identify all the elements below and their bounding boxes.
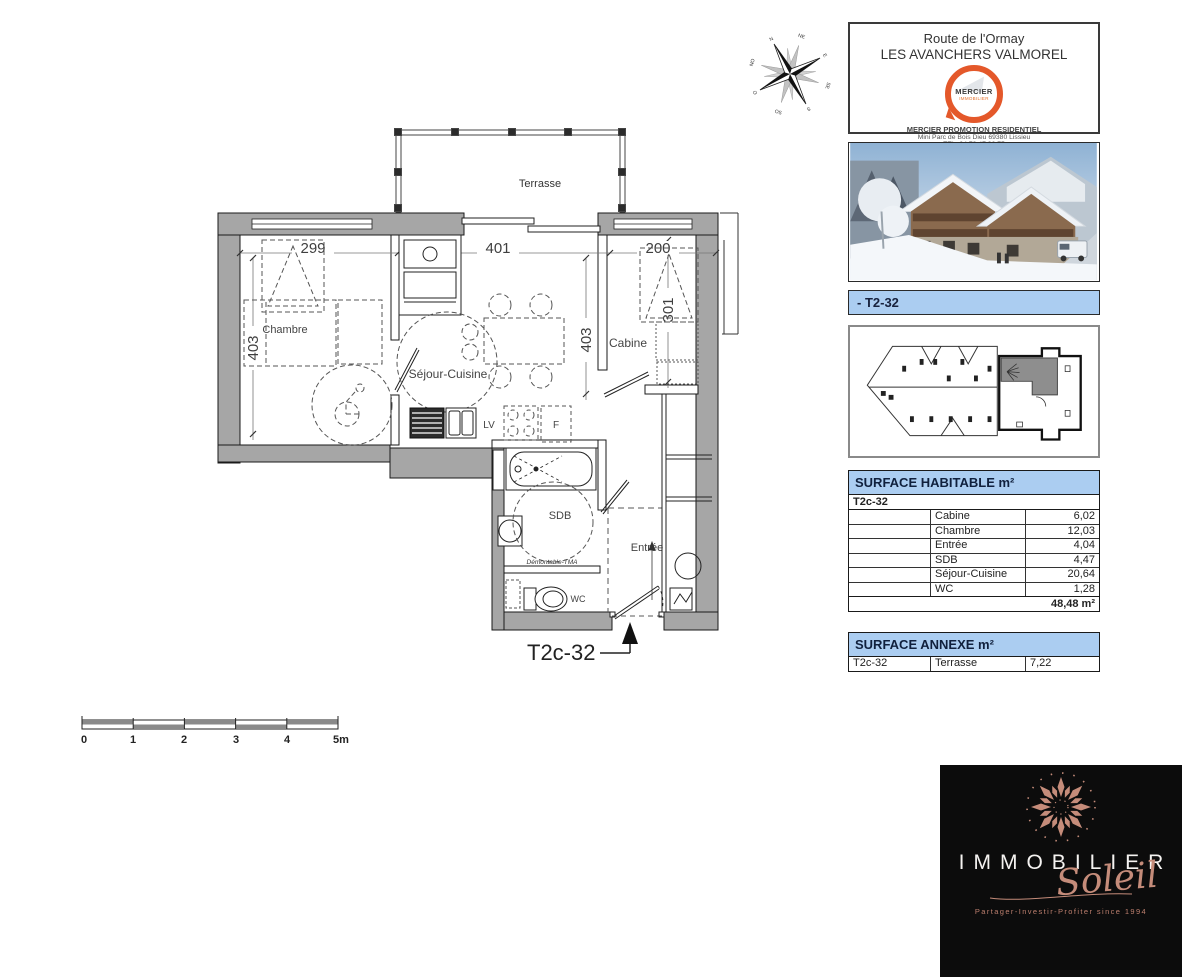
svg-text:5m: 5m [333,734,349,746]
dishwasher-label: LV [483,420,495,431]
terrace-railing [395,129,626,213]
terrace-sliding-door [462,218,600,232]
sdb-label: SDB [549,510,572,522]
svg-text:0: 0 [81,734,87,746]
svg-text:403: 403 [245,335,262,360]
surface-habitable-title: SURFACE HABITABLE m² [849,471,1099,495]
svg-text:4: 4 [284,734,291,746]
svg-text:2: 2 [181,734,187,746]
floor-plan: Terrasse [0,0,840,760]
surface-habitable-unit: T2c-32 [849,495,1099,510]
immobilier-soleil-logo: IMMOBILIER Soleil Partager-Investir-Prof… [940,765,1182,977]
surface-annexe-table: SURFACE ANNEXE m² T2c-32 Terrasse 7,22 [848,632,1100,672]
building-photo [848,142,1100,282]
svg-text:403: 403 [578,327,595,352]
table-row: Séjour-Cuisine20,64 [849,567,1099,582]
table-row: Cabine6,02 [849,510,1099,524]
svg-text:E: E [821,53,828,59]
mercier-logo-name: MERCIER [955,87,992,96]
agency-street: Route de l'Ormay [850,31,1098,46]
svg-text:S: S [805,105,811,112]
svg-text:NE: NE [797,33,806,41]
wc-fixtures [506,580,567,611]
brand-script: Soleil [1055,859,1160,902]
sunburst-icon [1016,765,1106,849]
scale-bar: 0 1 2 3 4 5m [81,716,349,746]
brand-tagline: Partager-Investir-Profiter since 1994 [975,907,1147,916]
svg-text:301: 301 [660,297,677,322]
demontable-label: Démontable-TMA [527,559,578,566]
sdb-fixtures [493,448,596,546]
mercier-logo-sub: IMMOBILIER [959,96,989,101]
svg-text:N: N [769,36,775,43]
sdb-turning-circle [513,482,593,562]
neighbour-wall [720,213,738,334]
chambre-label: Chambre [262,324,307,336]
unit-label-bar: - T2-32 [848,290,1100,315]
agency-box: Route de l'Ormay LES AVANCHERS VALMOREL … [848,22,1100,134]
svg-text:1: 1 [130,734,136,746]
terrasse-label: Terrasse [519,178,561,190]
table-row: WC1,28 [849,582,1099,597]
surface-habitable-total: 48,48 m² [849,596,1099,611]
cabine-label: Cabine [609,336,647,350]
svg-text:SO: SO [774,107,783,115]
surface-habitable-table: SURFACE HABITABLE m² T2c-32 Cabine6,02 C… [848,470,1100,612]
table-row: T2c-32 Terrasse 7,22 [849,657,1099,671]
wc-label: WC [571,594,586,604]
surface-annexe-title: SURFACE ANNEXE m² [849,633,1099,657]
mercier-logo-icon: MERCIER IMMOBILIER [945,65,1003,123]
agency-address: Mini Parc de Bois Dieu 69380 Lissieu [850,134,1098,141]
site-plan-thumbnail [848,325,1100,458]
svg-text:299: 299 [300,240,325,257]
sejour-label: Séjour-Cuisine [409,367,488,381]
svg-text:SE: SE [823,81,831,90]
compass-icon: N NE E SE S SO O NO [733,17,840,132]
entree-boundary [608,508,662,612]
svg-text:401: 401 [485,240,510,257]
kitchen-counter-top [399,235,461,315]
svg-text:3: 3 [233,734,239,746]
agency-company: MERCIER PROMOTION RESIDENTIEL [850,125,1098,134]
table-row: Entrée4,04 [849,538,1099,553]
svg-text:O: O [752,89,759,95]
unit-label: - T2-32 [857,295,899,310]
entree-label: Entrée [631,542,663,554]
fridge-label: F [553,420,559,431]
chambre-furniture [244,240,392,445]
table-row: Chambre12,03 [849,524,1099,539]
svg-text:T2c-32: T2c-32 [527,640,595,665]
table-row: SDB4,47 [849,553,1099,568]
agency-city: LES AVANCHERS VALMOREL [850,47,1098,62]
svg-text:NO: NO [749,58,757,67]
